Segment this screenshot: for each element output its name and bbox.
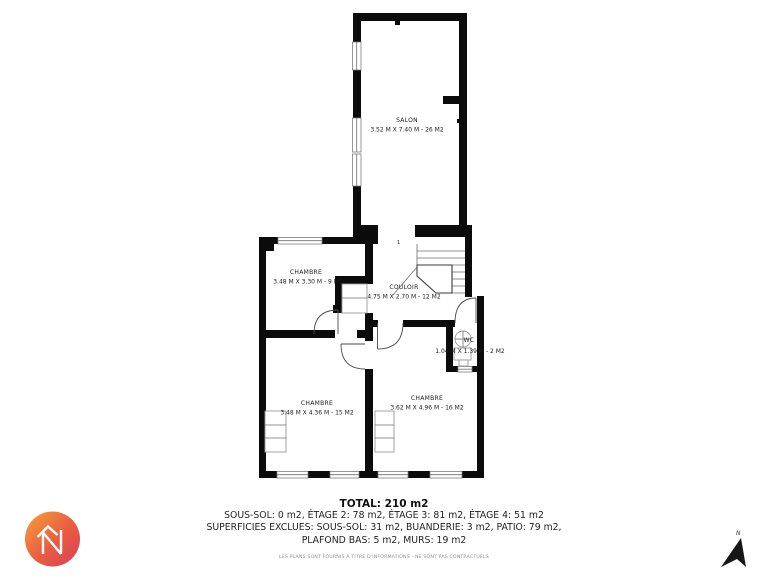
wall-segment [308,471,330,478]
summary-exclusions-2: PLAFOND BAS: 5 m2, MURS: 19 m2 [0,535,768,547]
room-label-chambre-3: CHAMBRE [411,395,443,402]
window [378,472,408,479]
wall-segment [403,320,455,327]
radiator [265,411,286,452]
window [353,42,362,70]
room-dims-chambre-1: 3.48 M X 3.30 M - 9 M2 [273,279,343,286]
window [277,472,308,479]
tick-mark [395,21,400,25]
floorplan-drawing: 1 SALON 3.52 M X 7.40 M - 26 M2 CHAM [0,0,768,576]
wall-segment [357,330,373,338]
summary-exclusions-1: SUPERFICIES EXCLUES: SOUS-SOL: 31 m2, BU… [0,522,768,534]
room-dims-wc: 1.04 M X 1.39 M - 2 M2 [435,348,505,355]
stair-mark-label: 1 [397,240,400,246]
room-dims-couloir: 4.75 M X 2.70 M - 12 M2 [367,294,441,301]
wall-segment [365,320,378,327]
summary-floors: SOUS-SOL: 0 m2, ÉTAGE 2: 78 m2, ÉTAGE 3:… [0,510,768,522]
window [458,367,472,373]
wall-segment [472,366,484,372]
tick-mark [457,119,463,123]
door-swing [455,298,476,323]
window [330,472,359,479]
door-swing [378,323,404,349]
room-dims-chambre-3: 3.62 M X 4.96 M - 16 M2 [390,405,464,412]
wall-stub [443,96,459,104]
wall-segment [259,471,277,478]
room-label-wc: WC [464,337,475,344]
wall-segment [353,225,378,237]
window [353,118,362,152]
wall-segment [353,70,361,118]
room-dims-chambre-2: 3.48 M X 4.36 M - 15 M2 [280,410,354,417]
wall-segment [477,296,484,478]
room-label-chambre-1: CHAMBRE [290,269,322,276]
summary-block: TOTAL: 210 m2 SOUS-SOL: 0 m2, ÉTAGE 2: 7… [0,498,768,561]
door-swing [341,344,365,369]
summary-total: TOTAL: 210 m2 [0,498,768,510]
wall-segment [408,471,430,478]
room-dims-salon: 3.52 M X 7.40 M - 26 M2 [370,127,444,134]
stair-winder [417,265,452,293]
room-label-chambre-2: CHAMBRE [301,400,333,407]
room-label-couloir: COULOIR [389,284,418,291]
room-label-salon: SALON [396,117,418,124]
disclaimer-text: LES PLANS SONT FOURNIS À TITRE D'INFORMA… [84,554,683,559]
wall-segment [465,237,472,297]
wall-segment [353,21,361,42]
wall-segment [446,366,458,372]
wall-segment [459,13,467,237]
radiator [375,411,394,452]
closet [342,284,367,313]
window [278,238,322,245]
wall-segment [365,369,373,478]
window [353,154,362,186]
wall-segment [415,225,472,237]
wall-segment [353,13,467,21]
window [430,472,462,479]
wall-segment [259,330,335,338]
